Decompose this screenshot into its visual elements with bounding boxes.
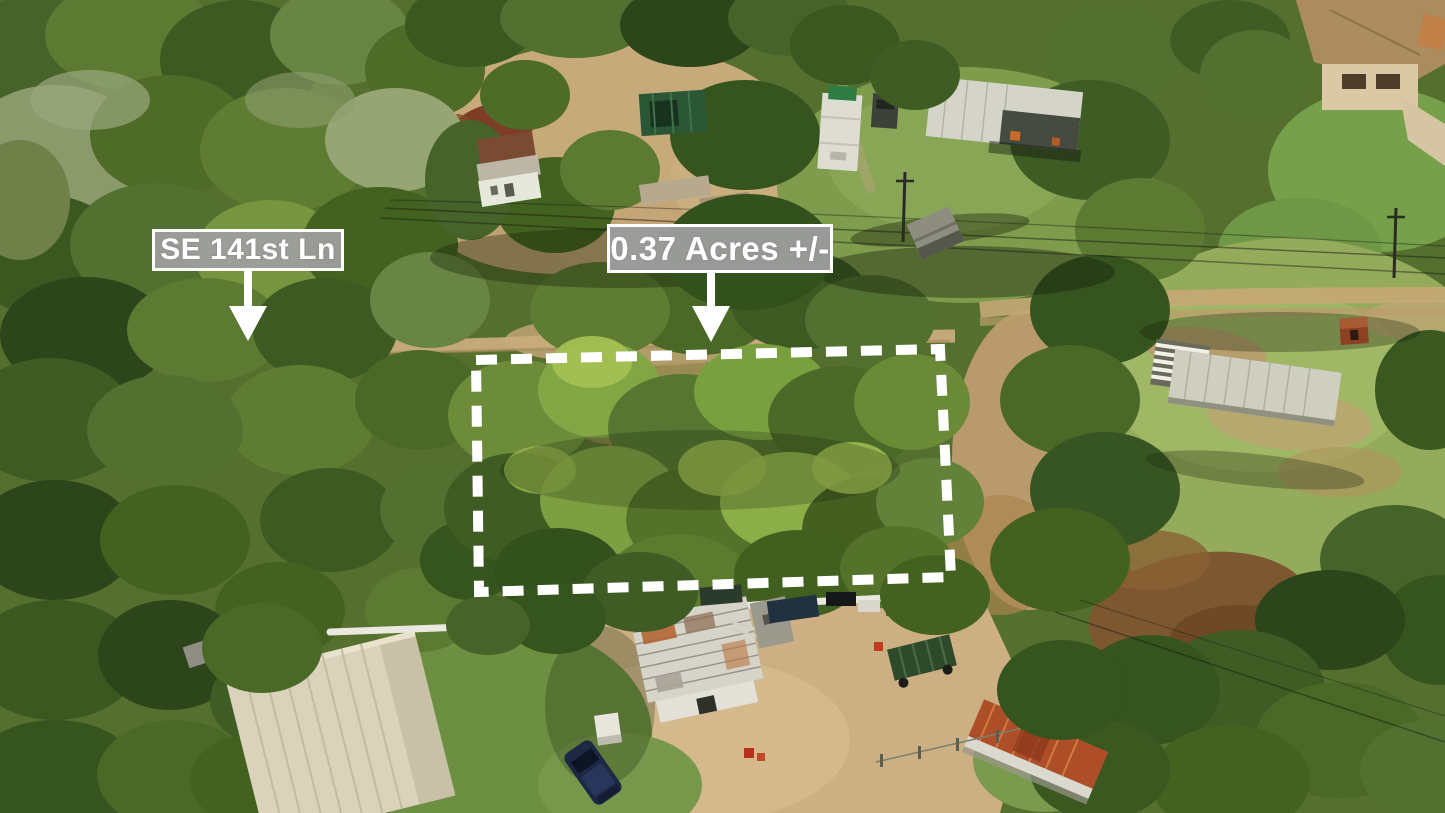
street-label: SE 141st Ln <box>152 229 344 271</box>
annotation-overlay <box>0 0 1445 813</box>
aerial-photo-view: SE 141st Ln 0.37 Acres +/- <box>0 0 1445 813</box>
street-label-text: SE 141st Ln <box>160 233 336 267</box>
parcel-boundary <box>476 349 951 592</box>
acreage-label: 0.37 Acres +/- <box>607 224 833 273</box>
street-down-arrow-icon <box>229 271 267 341</box>
acreage-down-arrow-icon <box>692 273 730 342</box>
acreage-label-text: 0.37 Acres +/- <box>610 230 830 268</box>
